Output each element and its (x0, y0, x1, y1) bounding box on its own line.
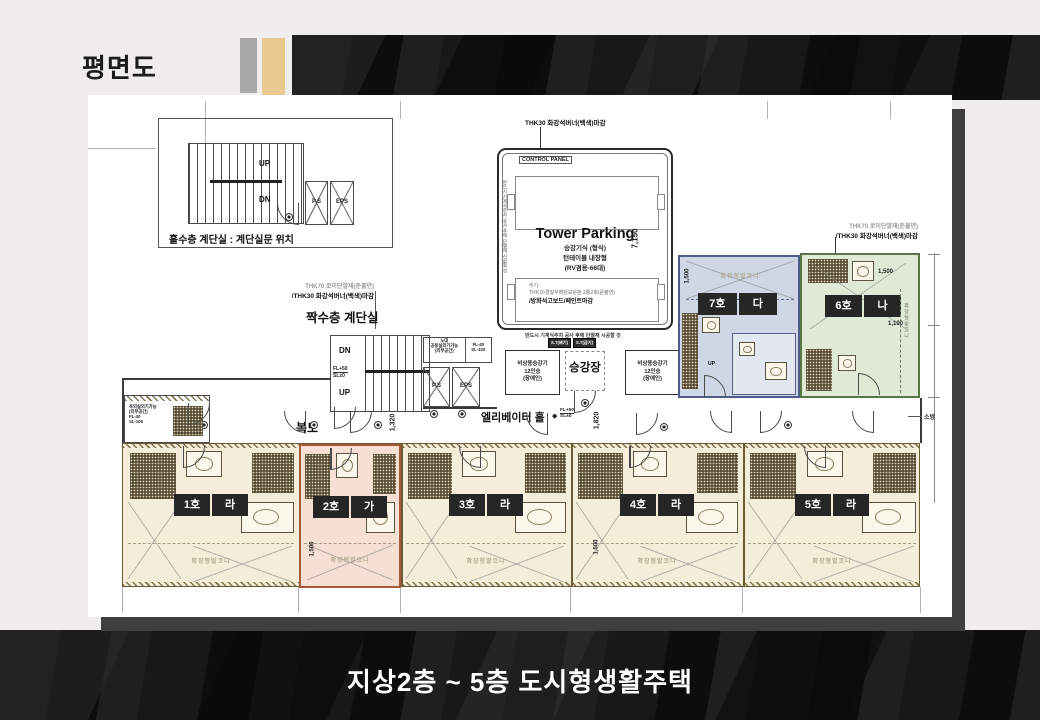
control-panel-label: CONTROL PANEL (519, 156, 572, 164)
unit-type: 라 (658, 494, 694, 516)
balcony-line (576, 543, 738, 544)
toilet-fixture (838, 355, 856, 371)
unit-label-1: 1호 라 (174, 494, 248, 516)
unit-no: 5호 (795, 494, 831, 516)
balcony-line (128, 543, 293, 544)
utility-text: 옥외실외기가능 (외부공간) FL-40 SL-100 (129, 404, 157, 425)
door-arc (852, 411, 874, 433)
vent-exhaust: S.T(배기) (548, 338, 571, 348)
dim-1320: 1,320 (389, 414, 396, 432)
unit-2-area: 2호 가 1,500 확장형발코니 (299, 444, 401, 588)
finish-note-line1: THK70 로이단열재(준불연) (778, 221, 918, 230)
ps-shaft: P.S (305, 181, 328, 225)
door-arc (804, 446, 826, 468)
fixture-block (373, 454, 397, 493)
eps-label: EPS (331, 199, 353, 205)
bath-fixture (862, 502, 915, 534)
dimension-tick (928, 397, 940, 398)
parking-top-note-text: THK30 화강석버너(백색)마감 (525, 120, 606, 127)
unit-no: 2호 (313, 496, 349, 518)
parking-sub1: 승강기식 (형식) (499, 242, 671, 252)
unit-no: 1호 (174, 494, 210, 516)
elev-name: 비상용승강기 (637, 361, 667, 368)
pallet-tab (507, 194, 515, 210)
header-band (292, 35, 1040, 100)
dimension-tick (928, 325, 940, 326)
stair-treads (365, 336, 429, 411)
dim-1500: 1,500 (685, 268, 691, 283)
eps-shaft: EPS (330, 181, 354, 225)
balcony-line (406, 543, 566, 544)
kitchen-counter (682, 313, 698, 389)
hinge-symbol (660, 423, 668, 431)
dim-1500: 1,500 (878, 269, 893, 275)
unit-7-area: 확장형발코니 1,500 UP 7호 다 (678, 255, 800, 398)
hinge-symbol (430, 410, 438, 418)
balcony-label: 확장형발코니 (301, 555, 399, 564)
grid-line (890, 101, 891, 119)
bath-fixture (241, 502, 294, 534)
leader-line (835, 237, 836, 253)
footer-band: 지상2층 ~ 5층 도시형생활주택 (0, 630, 1040, 720)
elev-name: 비상용승강기 (517, 361, 547, 368)
ps-label: P.S (424, 383, 449, 389)
dimension-line (934, 253, 935, 503)
dim-7150: 7,150 (631, 228, 640, 248)
main-stair: DN FL+50 SL±0 UP (330, 335, 430, 412)
up-label: UP (339, 388, 350, 397)
parking-sub2: 턴테이블 내장형 (499, 252, 671, 262)
balcony-divider (900, 289, 901, 393)
deco-bar-tan (262, 38, 285, 95)
elev-accessible: (장애인) (643, 376, 662, 383)
even-stair-label: 짝수층 계단실 (306, 307, 378, 326)
door-arc (710, 411, 732, 433)
balcony-label: 확장형발코니 (743, 556, 921, 565)
dim-1500: 1,500 (594, 539, 600, 554)
unit-label-4: 4호 라 (620, 494, 694, 516)
up-label: UP (708, 361, 715, 367)
unit-type: 라 (833, 494, 869, 516)
utility-sl: SL-100 (129, 419, 157, 424)
unit-3-area: 3호 라 확장형발코니 (401, 444, 571, 588)
door-arc (704, 375, 726, 397)
balcony-line (748, 543, 915, 544)
eps-shaft: EPS (452, 367, 480, 407)
door-arc (526, 413, 548, 435)
door-arc (459, 446, 481, 468)
grid-line (88, 148, 156, 149)
parking-title: Tower Parking (499, 226, 671, 242)
door-arc (636, 413, 658, 435)
fixture-block (305, 454, 330, 499)
emergency-elevator-right: 비상용승강기 12인승 (장애인) (625, 350, 680, 395)
toilet-fixture (739, 342, 755, 356)
finish-note-line2: /THK30 화강석버너(백색)마감 (778, 230, 918, 240)
unit-no: 6호 (825, 295, 862, 317)
grid-tick (742, 587, 743, 613)
parking-notes: 주기: THK20경질우레탄보온판 2종2호(준불연) /방화석고보드/페인트마… (529, 282, 615, 305)
nodae-box: 노대 공용실외기가능 (외부공간) FL-40 SL-100 (423, 337, 492, 363)
wall (920, 398, 922, 443)
unit-no: 3호 (449, 494, 485, 516)
grid-tick (298, 587, 299, 613)
lobby-sl: SL±0 (560, 414, 574, 419)
unit-type: 가 (351, 496, 387, 518)
unit-label-2: 2호 가 (313, 496, 387, 518)
grid-tick (122, 587, 123, 613)
stair-landing (210, 180, 283, 183)
stair-detail-inset: UP DN P.S EPS 홀수층 계단실 : 계단실문 위치 (158, 118, 393, 248)
unit-label-5: 5호 라 (795, 494, 869, 516)
balcony-label: 확장형발코니 (690, 271, 790, 280)
unit-row: 1호 라 확장형발코니 2호 가 1,500 확장형발코니 (122, 443, 920, 587)
grid-tick (920, 587, 921, 613)
balcony-label: 확장형발코니 (571, 556, 743, 565)
balcony-label: 확장형발코니 (123, 556, 299, 565)
slide: 평면도 지상2층 ~ 5층 도시형생활주택 U (0, 0, 1040, 720)
note2: /방화석고보드/페인트마감 (529, 296, 615, 305)
finish-note: THK70 로이단열재(준불연) /THK30 화강석버너(백색)마감 (218, 281, 374, 300)
unit-1-area: 1호 라 확장형발코니 (123, 444, 299, 588)
nodae-sl: SL-100 (466, 347, 491, 352)
parking-side-note: 반드시 기계식주차 공사 후에 단열재 시공할 것 (502, 180, 508, 273)
dim-1820: 1,820 (593, 412, 600, 430)
room-cross (748, 502, 801, 580)
nodae-desc2: (외부공간) (424, 348, 465, 353)
note1: THK20경질우레탄보온판 2종2호(준불연) (529, 289, 615, 296)
fire-label: 소방 (924, 412, 935, 421)
nodae-levels: FL-40 SL-100 (466, 338, 491, 362)
leader-line (540, 127, 541, 148)
fixture-block (525, 453, 566, 493)
footer-title: 지상2층 ~ 5층 도시형생활주택 (0, 662, 1040, 699)
fixture-block (130, 453, 176, 499)
door-arc (858, 373, 880, 395)
ps-shaft: P.S (423, 367, 450, 407)
hinge-symbol (374, 421, 382, 429)
unit-5-area: 5호 라 확장형발코니 (743, 444, 921, 588)
level-note: FL+50 SL±0 (333, 366, 348, 379)
level-diamond: ◆ (552, 412, 557, 420)
grid-line (767, 101, 768, 119)
door-arc (284, 411, 306, 433)
floor-plan-sheet: UP DN P.S EPS 홀수층 계단실 : 계단실문 위치 THK70 로이… (88, 95, 952, 617)
deco-bar-gray (240, 38, 257, 93)
door-arc (629, 446, 651, 468)
parking-top-note: THK30 화강석버너(백색)마감 (525, 117, 606, 127)
pallet-tab (657, 284, 665, 300)
unit-label-6: 6호 나 (825, 295, 901, 317)
door-arc (183, 446, 205, 468)
unit-type: 라 (487, 494, 523, 516)
basin-fixture (765, 362, 787, 380)
stair-detail-caption: 홀수층 계단실 : 계단실문 위치 (169, 231, 294, 246)
parking-sub3: (RV겸용-66대) (499, 262, 671, 272)
dn-label: DN (339, 346, 351, 355)
fixture-block (578, 453, 623, 499)
grid-line (400, 101, 401, 119)
page-title: 평면도 (82, 48, 157, 85)
dn-label: DN (259, 195, 271, 204)
fl-level: FL+50 (333, 366, 348, 373)
bathroom (732, 333, 796, 395)
fixture-block (252, 453, 294, 493)
pallet-tab (657, 194, 665, 210)
unit-4-area: 4호 라 1,500 확장형발코니 (571, 444, 743, 588)
hinge-symbol (310, 421, 318, 429)
tower-parking: CONTROL PANEL Tower Parking 승강기식 (형식) 턴테… (497, 148, 673, 330)
lobby-levels: FL+50 SL±0 (560, 408, 574, 419)
unit-no: 4호 (620, 494, 656, 516)
door-arc (760, 411, 782, 433)
vent-labels: S.T(배기) S.T(급기) (548, 338, 596, 348)
door-arc (330, 448, 352, 470)
up-label: UP (259, 159, 270, 168)
parking-labels: Tower Parking 승강기식 (형식) 턴테이블 내장형 (RV겸용-6… (499, 226, 671, 272)
pallet-tab (507, 284, 515, 300)
stair-landing (365, 370, 429, 373)
nodae-text: 노대 공용실외기가능 (외부공간) (424, 338, 466, 362)
fixture-block (697, 453, 738, 493)
grid-tick (570, 587, 571, 613)
finish-note: THK70 로이단열재(준불연) /THK30 화강석버너(백색)마감 (778, 221, 918, 240)
unit-type: 라 (212, 494, 248, 516)
unit-type: 나 (864, 295, 901, 317)
hall-label: 승강장 (555, 359, 615, 375)
finish-note-line1: THK70 로이단열재(준불연) (218, 281, 374, 290)
wall-hatch (125, 396, 209, 401)
eps-label: EPS (453, 383, 479, 389)
fixture-block (750, 453, 796, 499)
unit-type: 다 (739, 293, 778, 315)
hinge-symbol (581, 399, 589, 407)
ps-label: P.S (306, 199, 327, 205)
elev-accessible: (장애인) (523, 376, 542, 383)
dimension-tick (928, 254, 940, 255)
sink-fixture (702, 317, 720, 333)
unit-no: 7호 (698, 293, 737, 315)
finish-note-line2: /THK30 화강석버너(백색)마감 (218, 290, 374, 300)
emergency-elevator-left: 비상용승강기 12인승 (장애인) (505, 350, 560, 395)
unit-label-3: 3호 라 (449, 494, 523, 516)
balcony-label: 확장형발코니 (903, 303, 910, 339)
unit-label-7: 7호 다 (698, 293, 777, 315)
door-arc (350, 411, 372, 433)
vent-supply: S.T(급기) (573, 338, 596, 348)
hinge-symbol (784, 421, 792, 429)
fixture-block (408, 453, 452, 499)
grid-tick (400, 587, 401, 613)
note-label: 주기: (529, 282, 615, 289)
hinge-symbol (285, 213, 293, 221)
fixture-block (806, 349, 832, 391)
fixture-block (873, 453, 916, 493)
door-arc (188, 403, 210, 425)
leader-line (908, 416, 922, 417)
hinge-symbol (458, 410, 466, 418)
sl-level: SL±0 (333, 373, 348, 379)
unit-6-area: 1,500 1,100 6호 나 확장형발코니 (800, 253, 920, 398)
parking-pallet (515, 176, 659, 230)
wall (122, 378, 330, 380)
balcony-line (304, 543, 396, 544)
balcony-label: 확장형발코니 (401, 556, 571, 565)
